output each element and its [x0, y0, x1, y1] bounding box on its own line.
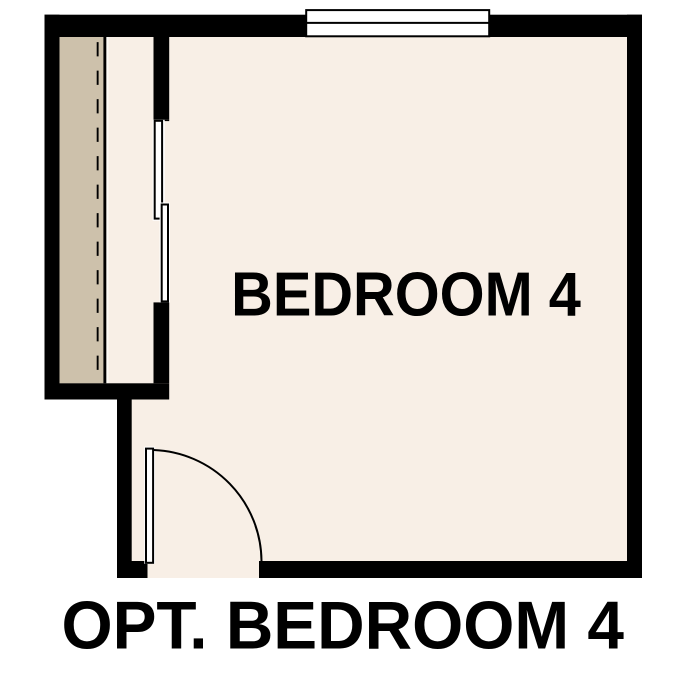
svg-text:OPT. BEDROOM 4: OPT. BEDROOM 4: [61, 588, 624, 664]
svg-text:BEDROOM 4: BEDROOM 4: [231, 261, 581, 330]
